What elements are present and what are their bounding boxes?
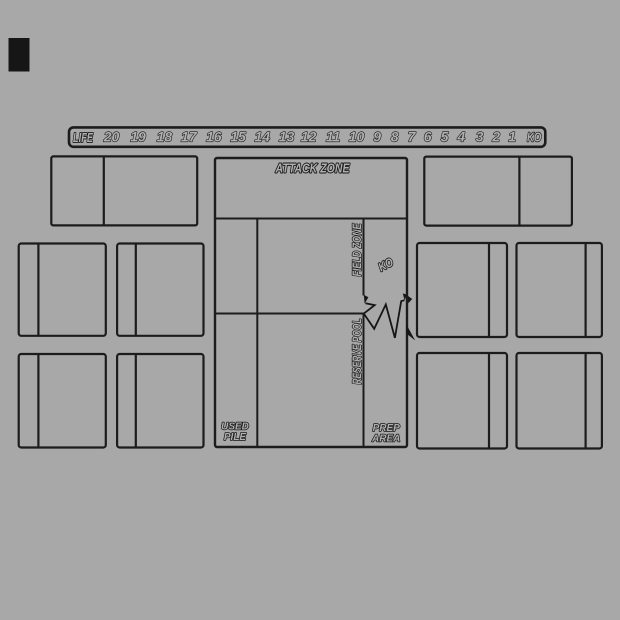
svg-text:3: 3 xyxy=(476,129,484,145)
svg-text:AREA: AREA xyxy=(371,433,400,444)
svg-text:USED: USED xyxy=(221,422,249,433)
svg-text:4: 4 xyxy=(456,129,465,145)
svg-text:5: 5 xyxy=(441,129,449,145)
svg-text:KO: KO xyxy=(527,131,542,145)
svg-text:17: 17 xyxy=(181,129,198,145)
svg-text:11: 11 xyxy=(326,129,341,145)
svg-text:6: 6 xyxy=(424,129,432,145)
svg-text:9: 9 xyxy=(373,129,381,145)
svg-text:10: 10 xyxy=(349,129,365,145)
svg-text:LIFE: LIFE xyxy=(73,130,93,145)
svg-text:18: 18 xyxy=(157,129,173,145)
svg-text:15: 15 xyxy=(230,129,246,145)
svg-text:FIELD ZONE: FIELD ZONE xyxy=(352,223,364,276)
svg-text:RESERVE POOL: RESERVE POOL xyxy=(352,319,364,385)
svg-text:16: 16 xyxy=(206,129,222,145)
svg-text:8: 8 xyxy=(391,129,399,145)
svg-text:12: 12 xyxy=(301,129,317,145)
svg-text:2: 2 xyxy=(491,129,500,145)
svg-text:ATTACK ZONE: ATTACK ZONE xyxy=(275,161,350,175)
svg-text:13: 13 xyxy=(279,129,295,145)
svg-text:1: 1 xyxy=(508,129,516,145)
svg-text:14: 14 xyxy=(255,129,271,145)
svg-text:20: 20 xyxy=(103,129,120,145)
svg-text:PREP: PREP xyxy=(373,423,401,434)
svg-text:7: 7 xyxy=(408,129,417,145)
svg-text:PILE: PILE xyxy=(224,432,247,443)
svg-text:19: 19 xyxy=(130,129,146,145)
